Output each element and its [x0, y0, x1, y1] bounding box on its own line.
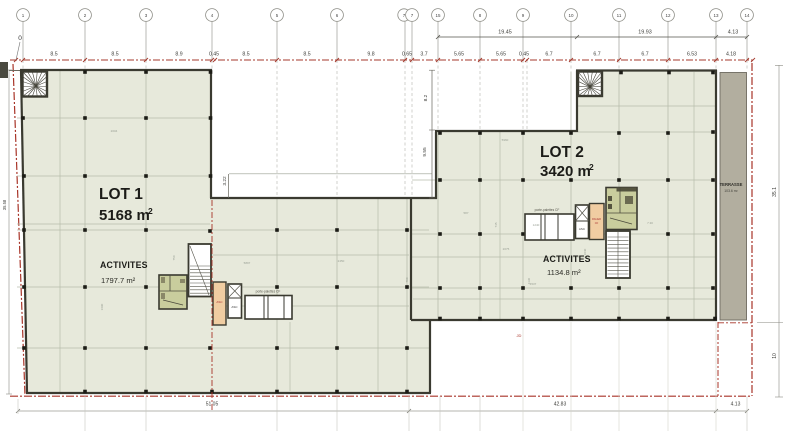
svg-text:8.2: 8.2 [423, 94, 429, 101]
svg-text:19.45: 19.45 [498, 30, 512, 36]
svg-text:0.45: 0.45 [519, 52, 529, 58]
svg-text:103.6 m²: 103.6 m² [724, 189, 738, 193]
svg-text:1797.7 m²: 1797.7 m² [101, 276, 136, 285]
svg-text:6.7: 6.7 [593, 52, 600, 58]
svg-text:5897: 5897 [244, 261, 251, 265]
svg-text:587: 587 [463, 211, 468, 215]
svg-text:8.5: 8.5 [111, 52, 118, 58]
svg-text:12: 12 [665, 13, 671, 18]
svg-text:5960: 5960 [502, 138, 509, 142]
svg-text:14: 14 [744, 13, 750, 18]
svg-text:3.7: 3.7 [420, 52, 427, 58]
svg-text:JD: JD [517, 333, 522, 338]
svg-text:8.9: 8.9 [175, 52, 182, 58]
svg-text:19.93: 19.93 [638, 30, 652, 36]
svg-text:5.65: 5.65 [454, 52, 464, 58]
svg-text:1240: 1240 [533, 223, 540, 227]
svg-text:1130: 1130 [527, 277, 531, 284]
svg-text:15: 15 [435, 13, 441, 18]
svg-text:10: 10 [772, 353, 778, 359]
svg-text:780: 780 [405, 277, 409, 282]
svg-text:ASC: ASC [579, 227, 586, 231]
svg-text:ASC: ASC [216, 300, 223, 304]
svg-text:5168 m: 5168 m [99, 207, 150, 224]
svg-text:porte-palettes CF: porte-palettes CF [256, 290, 281, 294]
svg-text:6.7: 6.7 [545, 52, 552, 58]
svg-text:6.53: 6.53 [687, 52, 697, 58]
svg-text:9.8: 9.8 [367, 52, 374, 58]
svg-text:10: 10 [568, 13, 574, 18]
svg-text:1690: 1690 [100, 303, 104, 310]
svg-text:13: 13 [713, 13, 719, 18]
svg-text:2075: 2075 [503, 247, 510, 251]
svg-text:745: 745 [494, 222, 498, 227]
svg-text:2: 2 [148, 206, 153, 216]
svg-text:2004: 2004 [111, 129, 118, 133]
svg-text:ASC: ASC [231, 305, 238, 309]
svg-text:LOT 1: LOT 1 [99, 186, 143, 203]
svg-text:4.13: 4.13 [728, 30, 739, 36]
svg-text:0.45: 0.45 [209, 52, 219, 58]
svg-text:35.1: 35.1 [772, 187, 778, 197]
svg-text:1040: 1040 [583, 248, 587, 255]
svg-text:2: 2 [589, 162, 594, 172]
svg-text:750: 750 [172, 255, 176, 260]
svg-text:35.58: 35.58 [2, 199, 7, 210]
svg-text:0.65: 0.65 [402, 52, 412, 58]
svg-text:PALIER: PALIER [592, 217, 601, 221]
svg-text:6.7: 6.7 [641, 52, 648, 58]
svg-text:5.65: 5.65 [496, 52, 506, 58]
svg-text:11: 11 [617, 13, 622, 18]
svg-text:8.5: 8.5 [303, 52, 310, 58]
svg-text:0: 0 [18, 35, 22, 42]
svg-text:3420 m: 3420 m [540, 163, 591, 180]
svg-text:7.30: 7.30 [647, 221, 653, 225]
svg-text:2450: 2450 [338, 259, 345, 263]
svg-text:8.5: 8.5 [242, 52, 249, 58]
svg-text:1134.8 m²: 1134.8 m² [547, 268, 581, 277]
svg-text:4.13: 4.13 [731, 402, 741, 408]
svg-text:porte-palettes CF: porte-palettes CF [535, 208, 560, 212]
svg-text:TERRASSE: TERRASSE [720, 182, 743, 187]
svg-text:LOT 2: LOT 2 [540, 144, 584, 161]
svg-text:8.5: 8.5 [50, 52, 57, 58]
svg-text:3.22: 3.22 [222, 176, 228, 186]
svg-text:ACTIVITES: ACTIVITES [100, 260, 148, 270]
svg-text:4.18: 4.18 [726, 52, 736, 58]
svg-text:CF: CF [595, 221, 599, 225]
svg-text:9.55: 9.55 [422, 147, 428, 157]
svg-text:42.83: 42.83 [554, 402, 567, 408]
